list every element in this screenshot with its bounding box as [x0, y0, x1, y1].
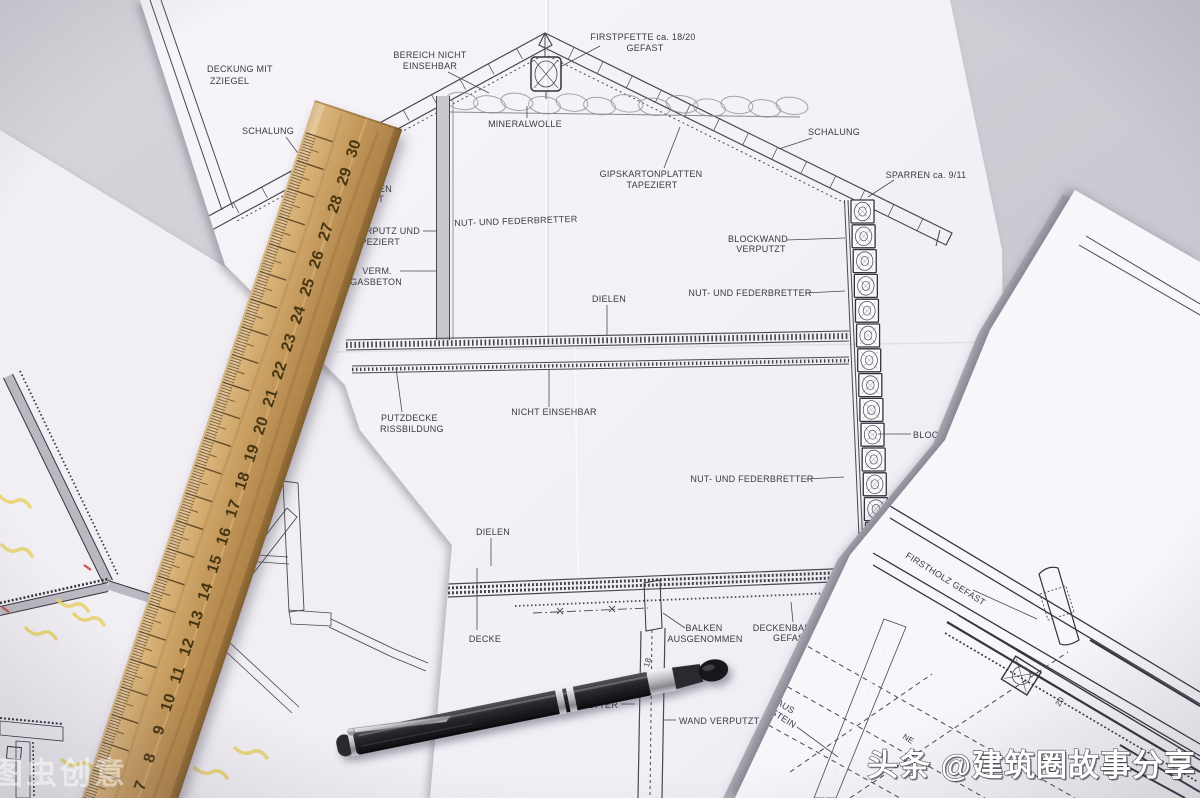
- label-firstpfette2: GEFAST: [626, 43, 663, 53]
- label-deckung: DECKUNG MIT: [207, 64, 273, 74]
- label-verm: VERM.: [362, 266, 392, 276]
- log-end-symbol: [854, 274, 877, 297]
- watermark-toutiao: 头条 @建筑圈故事分享 头条 @建筑圈故事分享: [867, 748, 1197, 785]
- label-sparren: SPARREN ca. 9/11: [886, 170, 967, 180]
- label-blockwand: BLOCKWAND: [728, 234, 788, 244]
- blueprint-photo: DECKUNG MIT ZZIEGEL BEREICH NICHT EINSEH…: [0, 0, 1200, 798]
- label-putzdecke: PUTZDECKE: [381, 413, 438, 423]
- label-balken: BALKEN: [685, 623, 722, 633]
- log-end-symbol: [857, 324, 880, 347]
- label-nicht-einsehbar: NICHT EINSEHBAR: [511, 407, 597, 417]
- log-end-symbol: [862, 448, 885, 471]
- log-end-symbol: [851, 200, 874, 223]
- log-end-symbol: [863, 473, 886, 496]
- log-end-symbol: [852, 225, 875, 248]
- label-firstpfette: FIRSTPFETTE ca. 18/20: [590, 32, 695, 42]
- label-bereich: BEREICH NICHT: [393, 50, 467, 60]
- log-end-symbol: [860, 398, 883, 421]
- label-schalung-right: SCHALUNG: [808, 127, 860, 137]
- log-end-symbol: [858, 349, 881, 372]
- watermark-tuchong: 图虫创意: [0, 756, 128, 791]
- label-bereich2: EINSEHBAR: [403, 61, 458, 71]
- log-end-symbol: [861, 423, 884, 446]
- label-blockwand2: VERPUTZT: [736, 244, 786, 254]
- svg-text:头条 @建筑圈故事分享: 头条 @建筑圈故事分享: [867, 748, 1196, 783]
- label-dielen-b: DIELEN: [476, 527, 510, 537]
- label-gipskarton2: TAPEZIERT: [627, 180, 678, 190]
- label-mineralwolle: MINERALWOLLE: [488, 119, 562, 129]
- label-verm2: GASBETON: [350, 277, 402, 287]
- label-wand-verputzt: WAND VERPUTZT: [679, 716, 760, 726]
- label-schalung-left: SCHALUNG: [242, 126, 294, 136]
- log-end-symbol: [855, 299, 878, 322]
- label-balken2: AUSGENOMMEN: [667, 634, 742, 644]
- log-end-symbol: [859, 374, 882, 397]
- log-end-symbol: [853, 250, 876, 273]
- label-dielen-a: DIELEN: [592, 294, 626, 304]
- label-nutfeder-c: NUT- UND FEDERBRETTER: [690, 474, 814, 484]
- label-decke: DECKE: [469, 634, 501, 644]
- label-gipskarton: GIPSKARTONPLATTEN: [600, 169, 703, 179]
- label-deckung2: ZZIEGEL: [210, 76, 249, 86]
- label-putzdecke2: RISSBILDUNG: [380, 424, 444, 434]
- label-nutfeder-b: NUT- UND FEDERBRETTER: [688, 288, 812, 298]
